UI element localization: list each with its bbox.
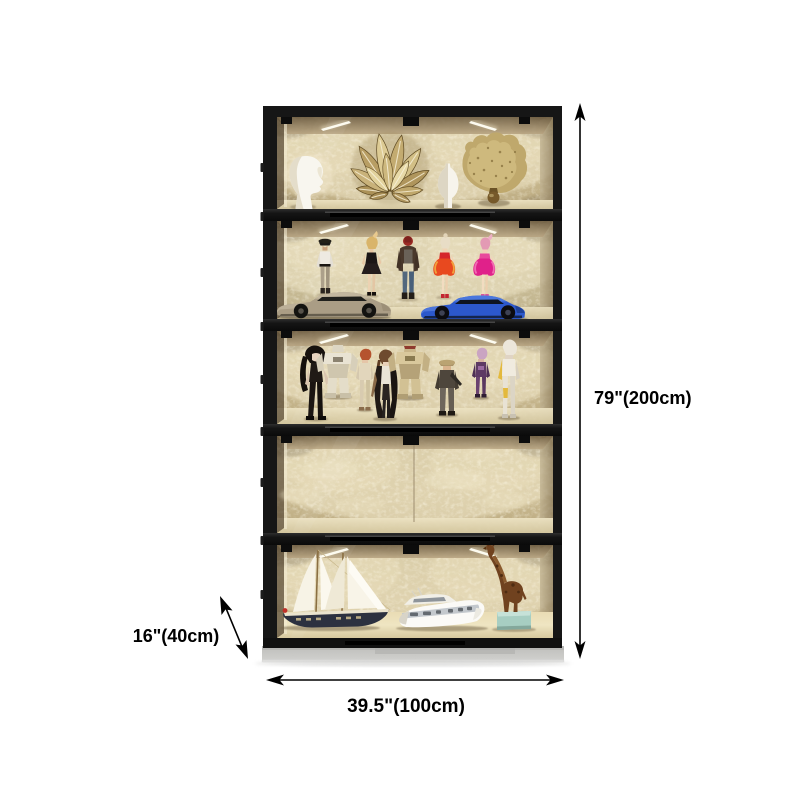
svg-text:16"(40cm): 16"(40cm)	[133, 626, 220, 646]
svg-text:79"(200cm): 79"(200cm)	[594, 388, 692, 408]
svg-text:39.5"(100cm): 39.5"(100cm)	[347, 696, 465, 717]
